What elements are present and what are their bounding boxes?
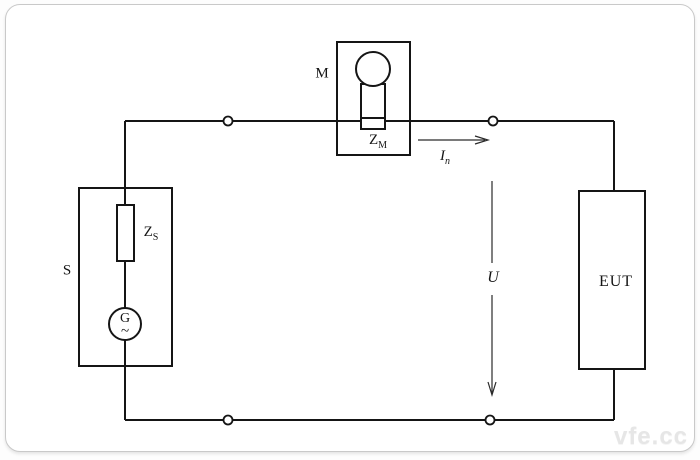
generator-waveform-icon: ~ xyxy=(121,325,129,340)
terminal-bottom-left xyxy=(224,416,233,425)
label-source: S xyxy=(63,264,71,279)
terminal-bottom-right xyxy=(486,416,495,425)
label-voltage: U xyxy=(487,270,499,286)
label-source-impedance: ZS xyxy=(144,225,159,243)
diagram-card: M ZM In U S ZS G ~ EUT vfe.cc xyxy=(5,4,695,452)
terminal-top-left xyxy=(224,117,233,126)
label-measuring-device: M xyxy=(315,67,328,82)
terminal-top-right xyxy=(489,117,498,126)
label-rated-current: In xyxy=(440,149,450,167)
watermark: vfe.cc xyxy=(614,423,688,451)
label-eut: EUT xyxy=(599,274,633,290)
label-measuring-impedance: ZM xyxy=(369,133,387,151)
source-impedance-resistor xyxy=(117,205,134,261)
circuit-canvas xyxy=(6,5,700,460)
probe-head-circle xyxy=(356,52,390,86)
screenshot-stage: M ZM In U S ZS G ~ EUT vfe.cc xyxy=(0,0,700,460)
probe-stem xyxy=(361,84,385,129)
